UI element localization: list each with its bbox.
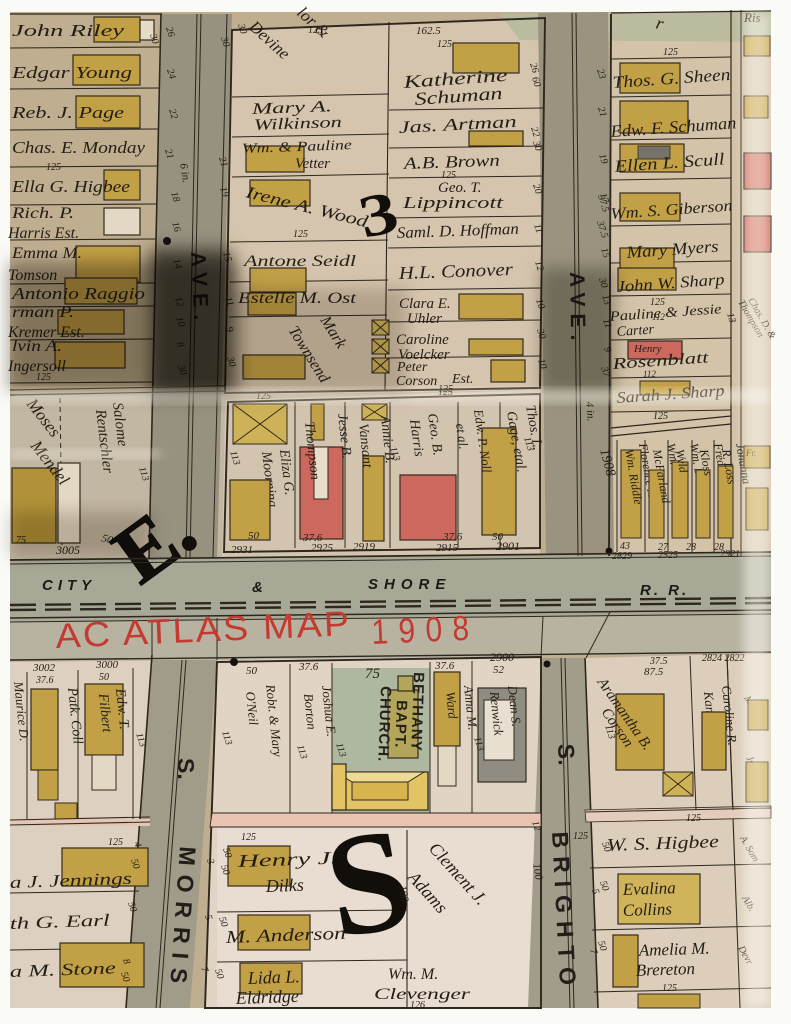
svg-text:4 in.: 4 in.	[583, 401, 597, 422]
svg-text:87.5: 87.5	[644, 666, 664, 678]
svg-text:S.: S.	[553, 743, 580, 766]
svg-text:125: 125	[686, 813, 701, 824]
svg-text:2919: 2919	[353, 541, 376, 553]
svg-text:Dilks: Dilks	[264, 875, 304, 896]
svg-text:50: 50	[99, 672, 109, 683]
svg-text:Chas. E. Monday: Chas. E. Monday	[12, 138, 146, 157]
svg-text:125: 125	[573, 831, 588, 842]
svg-text:162.5: 162.5	[416, 25, 441, 37]
svg-text:Lippincott: Lippincott	[402, 193, 505, 212]
svg-text:125: 125	[46, 162, 61, 173]
svg-text:2900: 2900	[490, 650, 514, 664]
svg-text:Eldridge: Eldridge	[234, 986, 299, 1008]
svg-text:2901: 2901	[496, 539, 520, 553]
svg-text:125: 125	[308, 25, 323, 36]
svg-text:125: 125	[437, 39, 452, 50]
svg-text:37.6: 37.6	[298, 661, 319, 673]
svg-text:John Riley: John Riley	[12, 21, 125, 40]
svg-text:Rich. P.: Rich. P.	[11, 205, 74, 222]
svg-text:Harris Est.: Harris Est.	[7, 225, 79, 242]
svg-text:125: 125	[293, 229, 308, 240]
svg-text:R. R.: R. R.	[640, 582, 689, 599]
svg-text:112: 112	[643, 369, 656, 379]
svg-text:37.5: 37.5	[649, 656, 668, 667]
svg-text:2525: 2525	[658, 550, 678, 561]
svg-text:75: 75	[365, 666, 381, 682]
svg-text:37.6: 37.6	[434, 660, 455, 672]
svg-text:Reb. J. Page: Reb. J. Page	[11, 103, 125, 122]
svg-text:126: 126	[410, 1000, 425, 1011]
svg-text:2931: 2931	[231, 544, 253, 556]
svg-text:125: 125	[108, 837, 123, 848]
svg-text:CITY: CITY	[42, 577, 96, 594]
svg-text:th G. Earl: th G. Earl	[9, 911, 110, 933]
svg-text:Ella G. Higbee: Ella G. Higbee	[11, 177, 131, 196]
svg-text:a M. Stone: a M. Stone	[9, 958, 116, 981]
svg-text:3002: 3002	[32, 662, 56, 674]
svg-text:3000: 3000	[95, 659, 119, 671]
svg-text:50: 50	[246, 665, 258, 677]
svg-text:125: 125	[653, 411, 668, 422]
svg-text:50: 50	[248, 530, 260, 542]
svg-text:W. S. Higbee: W. S. Higbee	[606, 831, 719, 855]
svg-text:CHURCH.: CHURCH.	[374, 686, 394, 763]
svg-text:Wm. M.: Wm. M.	[388, 966, 438, 983]
svg-text:Amelia M.: Amelia M.	[637, 939, 709, 960]
svg-text:2925: 2925	[311, 542, 334, 554]
svg-text:125: 125	[662, 983, 677, 994]
svg-text:2921: 2921	[720, 549, 740, 560]
svg-text:52: 52	[493, 664, 505, 676]
svg-text:Uhler: Uhler	[407, 311, 442, 327]
svg-text:1908: 1908	[371, 608, 481, 652]
svg-text:SHORE: SHORE	[368, 576, 451, 593]
svg-text:&: &	[252, 579, 263, 596]
svg-text:125: 125	[241, 832, 256, 843]
svg-text:Brereton: Brereton	[635, 959, 695, 980]
svg-text:Lida L.: Lida L.	[246, 966, 300, 988]
svg-text:2824 2822: 2824 2822	[702, 653, 745, 664]
svg-text:Ward: Ward	[443, 691, 461, 720]
svg-text:37.6: 37.6	[35, 675, 54, 686]
svg-text:Emma M.: Emma M.	[11, 245, 82, 262]
svg-text:Carter: Carter	[616, 322, 655, 340]
svg-text:S.: S.	[173, 758, 199, 780]
svg-text:H.L. Conover: H.L. Conover	[397, 259, 514, 283]
svg-text:Wilkinson: Wilkinson	[254, 114, 343, 134]
svg-text:Est.: Est.	[451, 372, 473, 387]
svg-text:125: 125	[663, 47, 678, 58]
svg-text:Edgar Young: Edgar Young	[11, 63, 132, 82]
svg-text:Vetter: Vetter	[295, 156, 330, 172]
svg-text:Antone Seidl: Antone Seidl	[243, 253, 357, 270]
svg-text:112: 112	[652, 312, 665, 322]
svg-text:M. Anderson: M. Anderson	[224, 923, 346, 947]
svg-text:2915: 2915	[436, 542, 459, 554]
svg-text:Evalina: Evalina	[621, 878, 676, 899]
svg-text:Collins: Collins	[622, 899, 672, 920]
svg-text:28: 28	[686, 542, 696, 553]
